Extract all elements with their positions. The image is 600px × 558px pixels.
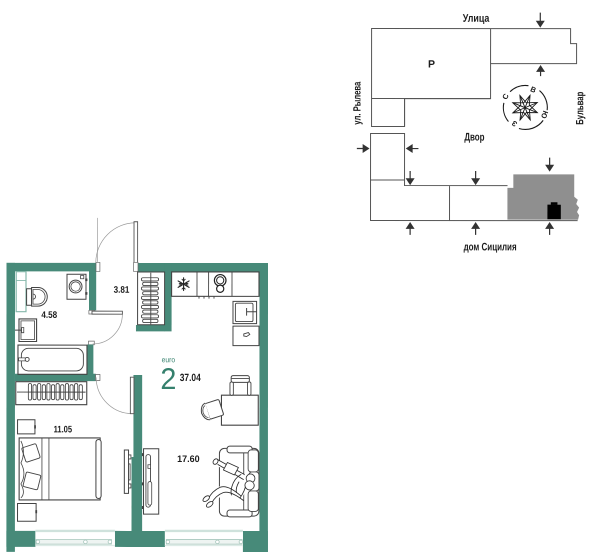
svg-text:Бульвар: Бульвар: [574, 92, 586, 125]
svg-text:ул. Рылева: ул. Рылева: [352, 82, 364, 125]
svg-text:2: 2: [160, 363, 176, 396]
svg-text:Р: Р: [428, 59, 435, 71]
svg-text:17.60: 17.60: [177, 454, 200, 465]
svg-text:Двор: Двор: [464, 132, 484, 144]
svg-text:Улица: Улица: [463, 13, 490, 25]
svg-text:4.58: 4.58: [41, 310, 57, 321]
svg-text:3.81: 3.81: [114, 285, 130, 296]
svg-text:37.04: 37.04: [180, 372, 201, 384]
svg-text:11.05: 11.05: [54, 424, 73, 435]
svg-text:дом Сицилия: дом Сицилия: [464, 241, 517, 253]
